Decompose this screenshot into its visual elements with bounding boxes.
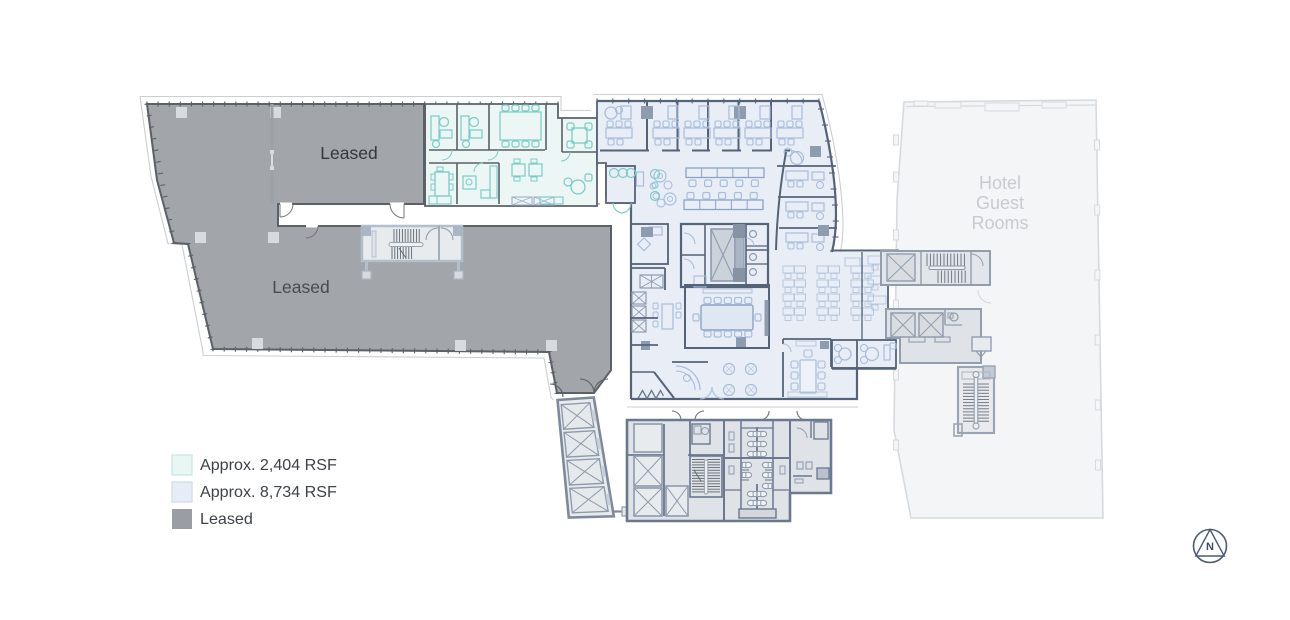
svg-text:Leased: Leased — [320, 143, 377, 163]
svg-text:Guest: Guest — [976, 193, 1024, 213]
svg-text:Leased: Leased — [272, 277, 329, 297]
svg-text:Approx. 2,404 RSF: Approx. 2,404 RSF — [200, 456, 337, 474]
svg-text:Hotel: Hotel — [979, 173, 1021, 193]
svg-text:N: N — [1206, 541, 1214, 553]
svg-text:Rooms: Rooms — [971, 213, 1028, 233]
svg-text:Leased: Leased — [200, 510, 253, 528]
svg-text:Approx. 8,734 RSF: Approx. 8,734 RSF — [200, 483, 337, 501]
